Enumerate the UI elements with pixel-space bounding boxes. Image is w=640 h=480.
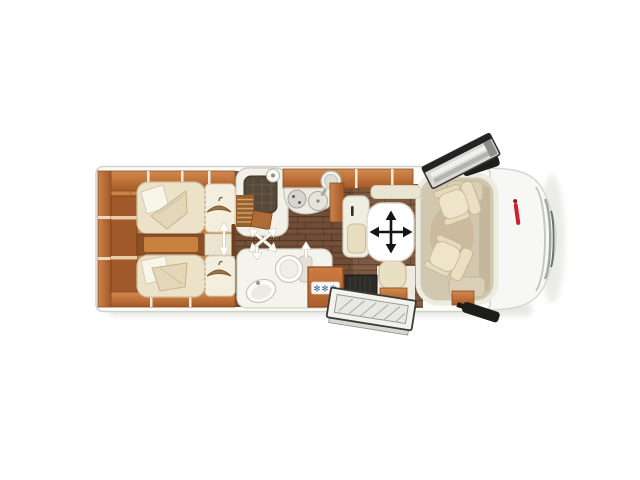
cab-side-cabinet xyxy=(452,291,474,305)
wood-step xyxy=(251,211,272,230)
rear-wardrobe xyxy=(111,196,137,294)
bed-podium xyxy=(137,234,235,255)
shower-cubicle xyxy=(236,168,288,236)
floorplan-canvas: ✻✻✻ xyxy=(0,0,640,480)
sliding-door-leaf xyxy=(232,224,236,256)
bench-seat xyxy=(343,196,369,257)
rear-bedroom xyxy=(98,171,235,307)
dinette-table xyxy=(367,203,414,261)
stool-seat xyxy=(379,261,406,288)
bed-bottom xyxy=(137,255,235,297)
side-console xyxy=(371,186,421,199)
cabinet-handle xyxy=(351,206,354,216)
bed-top xyxy=(137,182,235,234)
rear-wall-shelf xyxy=(98,171,111,307)
hob xyxy=(288,190,306,208)
kitchen-tall-cabinet xyxy=(330,183,344,222)
dashboard xyxy=(479,186,490,292)
floorplan-svg: ✻✻✻ xyxy=(0,0,640,480)
